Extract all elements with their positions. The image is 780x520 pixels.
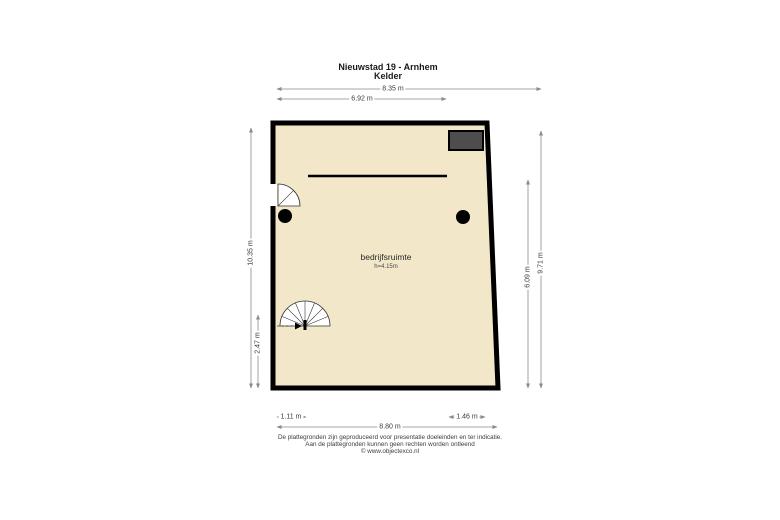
dim-top-outer: 8.35 m bbox=[380, 86, 405, 93]
dim-right-outer: 9.71 m bbox=[538, 250, 545, 275]
dim-bottom-full: 8.80 m bbox=[377, 424, 402, 431]
footer-copyright: © www.objectexco.nl bbox=[361, 449, 419, 455]
stair-center-post bbox=[304, 320, 307, 330]
room-height-label: h=4.15m bbox=[374, 264, 398, 270]
column-right bbox=[456, 210, 470, 224]
dim-right-inner: 6.09 m bbox=[525, 264, 532, 289]
dim-top-inner: 6.92 m bbox=[349, 96, 374, 103]
page-subtitle: Kelder bbox=[374, 72, 402, 81]
column-left bbox=[278, 209, 292, 223]
dark-box bbox=[449, 131, 483, 150]
door-wall-gap bbox=[269, 184, 277, 206]
dim-bottom-right: 1.46 m bbox=[454, 414, 479, 421]
dim-left-full: 10.35 m bbox=[248, 238, 255, 267]
dim-bottom-left: 1.11 m bbox=[279, 414, 304, 421]
floorplan-page: Nieuwstad 19 - Arnhem Kelder 8.35 m 6.92… bbox=[0, 0, 780, 520]
dim-left-lower: 2.47 m bbox=[255, 330, 262, 355]
room-label: bedrijfsruimte bbox=[360, 253, 411, 262]
